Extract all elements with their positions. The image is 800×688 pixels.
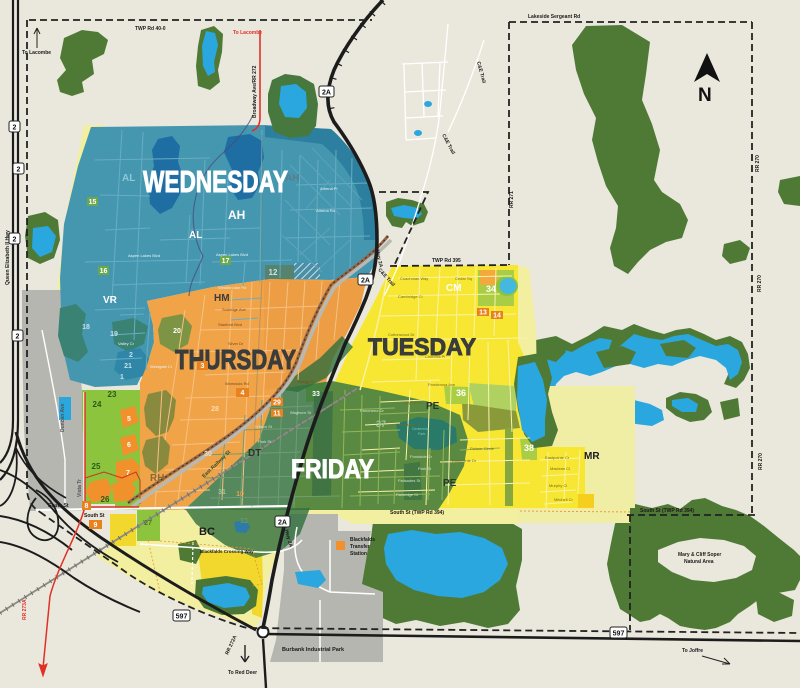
svg-text:Duncan Ave: Duncan Ave bbox=[60, 403, 66, 432]
svg-text:18: 18 bbox=[82, 324, 90, 331]
svg-text:Pondside Cr: Pondside Cr bbox=[410, 454, 433, 459]
svg-text:Gregg St: Gregg St bbox=[298, 379, 315, 384]
svg-text:Sunridge Ave: Sunridge Ave bbox=[222, 307, 246, 312]
svg-text:2: 2 bbox=[129, 352, 133, 359]
svg-text:Cedar Sq: Cedar Sq bbox=[455, 276, 472, 281]
svg-text:Athena Pl: Athena Pl bbox=[320, 186, 337, 191]
svg-text:6: 6 bbox=[127, 442, 131, 449]
svg-text:Cottonwood Dr: Cottonwood Dr bbox=[388, 332, 415, 337]
svg-text:38: 38 bbox=[524, 443, 534, 453]
svg-text:Athena Rd: Athena Rd bbox=[316, 208, 335, 213]
svg-text:Maclean Cl: Maclean Cl bbox=[550, 466, 570, 471]
svg-text:9: 9 bbox=[94, 522, 98, 529]
svg-text:Murphy Cl: Murphy Cl bbox=[549, 483, 567, 488]
svg-text:21: 21 bbox=[124, 363, 132, 370]
svg-text:16: 16 bbox=[100, 268, 108, 275]
svg-text:597: 597 bbox=[176, 614, 188, 621]
svg-text:Parkridge Cr: Parkridge Cr bbox=[396, 492, 419, 497]
svg-text:N: N bbox=[698, 85, 712, 106]
svg-text:2: 2 bbox=[13, 237, 17, 244]
svg-text:Station: Station bbox=[350, 551, 367, 557]
svg-text:Cambridge Cl: Cambridge Cl bbox=[398, 294, 423, 299]
svg-text:2: 2 bbox=[13, 125, 17, 132]
svg-text:RR 270: RR 270 bbox=[758, 453, 764, 470]
svg-text:28: 28 bbox=[211, 406, 219, 413]
svg-text:Eastpointe Cr: Eastpointe Cr bbox=[545, 455, 570, 460]
svg-text:2A: 2A bbox=[322, 90, 331, 97]
svg-text:FRIDAY: FRIDAY bbox=[291, 454, 374, 484]
svg-text:RH: RH bbox=[150, 473, 164, 484]
svg-text:27: 27 bbox=[144, 520, 152, 527]
svg-text:TWP Rd 40-0: TWP Rd 40-0 bbox=[135, 26, 166, 32]
svg-text:Centennial: Centennial bbox=[412, 427, 429, 431]
svg-text:Aspen Lakes Blvd: Aspen Lakes Blvd bbox=[216, 252, 248, 257]
svg-text:CM: CM bbox=[446, 283, 462, 294]
svg-text:RR 273A: RR 273A bbox=[22, 599, 28, 620]
svg-text:33: 33 bbox=[312, 391, 320, 398]
svg-text:TWP Rd 395: TWP Rd 395 bbox=[432, 258, 461, 264]
svg-text:To Lacombe: To Lacombe bbox=[233, 30, 262, 36]
svg-text:37: 37 bbox=[376, 419, 386, 429]
svg-text:Womacks Rd: Womacks Rd bbox=[225, 381, 249, 386]
svg-text:Panorama Dr: Panorama Dr bbox=[360, 408, 384, 413]
svg-text:AL: AL bbox=[189, 230, 202, 241]
svg-text:Silver Dr: Silver Dr bbox=[228, 341, 244, 346]
svg-text:5: 5 bbox=[127, 416, 131, 423]
svg-text:4: 4 bbox=[241, 390, 245, 397]
svg-text:RR 270: RR 270 bbox=[755, 155, 761, 172]
svg-text:19: 19 bbox=[110, 331, 118, 338]
svg-text:29: 29 bbox=[273, 400, 281, 407]
svg-text:2A: 2A bbox=[361, 278, 370, 285]
svg-text:TUESDAY: TUESDAY bbox=[368, 334, 476, 361]
svg-text:Eastpointe Dr: Eastpointe Dr bbox=[452, 458, 477, 463]
svg-text:BC: BC bbox=[199, 526, 215, 538]
svg-text:Wilson St: Wilson St bbox=[255, 424, 273, 429]
svg-text:To Joffre: To Joffre bbox=[682, 648, 703, 654]
svg-text:Park St: Park St bbox=[258, 439, 272, 444]
svg-text:13: 13 bbox=[479, 310, 487, 317]
svg-text:36: 36 bbox=[456, 388, 466, 398]
svg-text:Vista Tr: Vista Tr bbox=[77, 479, 83, 497]
svg-text:AL: AL bbox=[122, 173, 135, 184]
svg-text:Valley Cr: Valley Cr bbox=[118, 341, 135, 346]
svg-text:34: 34 bbox=[486, 284, 496, 294]
svg-text:15: 15 bbox=[89, 199, 97, 206]
svg-text:PE: PE bbox=[426, 401, 440, 412]
svg-text:30: 30 bbox=[204, 451, 212, 458]
svg-text:AH: AH bbox=[228, 208, 245, 222]
svg-text:Park: Park bbox=[418, 432, 425, 436]
svg-text:RR 270: RR 270 bbox=[757, 275, 763, 292]
svg-text:20: 20 bbox=[173, 328, 181, 335]
svg-text:Blackfalds: Blackfalds bbox=[350, 537, 375, 543]
svg-text:VR: VR bbox=[103, 295, 118, 306]
svg-text:RR 271: RR 271 bbox=[509, 191, 515, 208]
svg-text:Ponderosa Ave: Ponderosa Ave bbox=[428, 382, 456, 387]
svg-text:31: 31 bbox=[218, 489, 226, 496]
svg-text:South St: South St bbox=[48, 503, 69, 509]
svg-text:2: 2 bbox=[17, 167, 21, 174]
svg-text:Lakeside Sergeant Rd: Lakeside Sergeant Rd bbox=[528, 14, 580, 20]
svg-text:South St (TWP Rd 394): South St (TWP Rd 394) bbox=[390, 510, 444, 516]
svg-text:Broadway Ave/RR 272: Broadway Ave/RR 272 bbox=[252, 65, 258, 118]
svg-text:Waghorn St: Waghorn St bbox=[290, 410, 312, 415]
svg-text:26: 26 bbox=[101, 495, 110, 504]
svg-text:Aspen Lakes Blvd: Aspen Lakes Blvd bbox=[128, 253, 160, 258]
svg-text:2A: 2A bbox=[278, 520, 287, 527]
svg-text:10: 10 bbox=[236, 491, 244, 498]
svg-text:Palmer Circle: Palmer Circle bbox=[470, 446, 495, 451]
svg-text:Cyprus Rd: Cyprus Rd bbox=[404, 400, 423, 405]
svg-text:24: 24 bbox=[93, 400, 102, 409]
svg-text:To Red Deer: To Red Deer bbox=[228, 670, 257, 676]
svg-text:Transfer: Transfer bbox=[350, 544, 370, 550]
svg-text:THURSDAY: THURSDAY bbox=[175, 344, 296, 375]
svg-text:17: 17 bbox=[222, 258, 230, 265]
svg-text:South St (TWP Rd 394): South St (TWP Rd 394) bbox=[640, 508, 694, 514]
svg-text:Weallbrooke Rd: Weallbrooke Rd bbox=[218, 285, 246, 290]
svg-text:Stanford Blvd: Stanford Blvd bbox=[218, 322, 242, 327]
svg-text:25: 25 bbox=[92, 462, 101, 471]
svg-text:WEDNESDAY: WEDNESDAY bbox=[143, 164, 288, 199]
svg-text:Park St: Park St bbox=[418, 466, 432, 471]
svg-text:23: 23 bbox=[108, 390, 117, 399]
svg-text:Mary & Cliff Soper: Mary & Cliff Soper bbox=[678, 552, 721, 558]
svg-text:DT: DT bbox=[248, 448, 261, 459]
svg-text:14: 14 bbox=[493, 313, 501, 320]
svg-text:1: 1 bbox=[120, 374, 124, 381]
svg-text:AH: AH bbox=[285, 173, 299, 184]
svg-text:597: 597 bbox=[613, 631, 625, 638]
svg-text:2: 2 bbox=[16, 334, 20, 341]
svg-text:Palisades St: Palisades St bbox=[398, 478, 421, 483]
svg-text:11: 11 bbox=[273, 411, 281, 418]
svg-text:South St: South St bbox=[84, 513, 105, 519]
svg-text:Blackfalds Crossing Way: Blackfalds Crossing Way bbox=[200, 549, 254, 554]
svg-text:MR: MR bbox=[584, 451, 600, 462]
svg-text:8: 8 bbox=[85, 503, 89, 510]
svg-text:Burbank Industrial Park: Burbank Industrial Park bbox=[282, 647, 345, 653]
svg-text:Churchill Pl: Churchill Pl bbox=[425, 354, 445, 359]
svg-text:12: 12 bbox=[269, 268, 278, 277]
svg-text:HM: HM bbox=[214, 293, 230, 304]
svg-text:32: 32 bbox=[240, 518, 248, 525]
svg-text:Coachman Way: Coachman Way bbox=[400, 276, 428, 281]
svg-text:Natural Area: Natural Area bbox=[684, 559, 714, 565]
svg-text:PE: PE bbox=[443, 478, 457, 489]
svg-text:3: 3 bbox=[201, 363, 205, 370]
svg-text:7: 7 bbox=[126, 470, 130, 477]
svg-text:Mitchell Cr: Mitchell Cr bbox=[554, 497, 574, 502]
svg-text:Westgate Cr: Westgate Cr bbox=[150, 364, 173, 369]
svg-text:To Lacombe: To Lacombe bbox=[22, 50, 51, 56]
